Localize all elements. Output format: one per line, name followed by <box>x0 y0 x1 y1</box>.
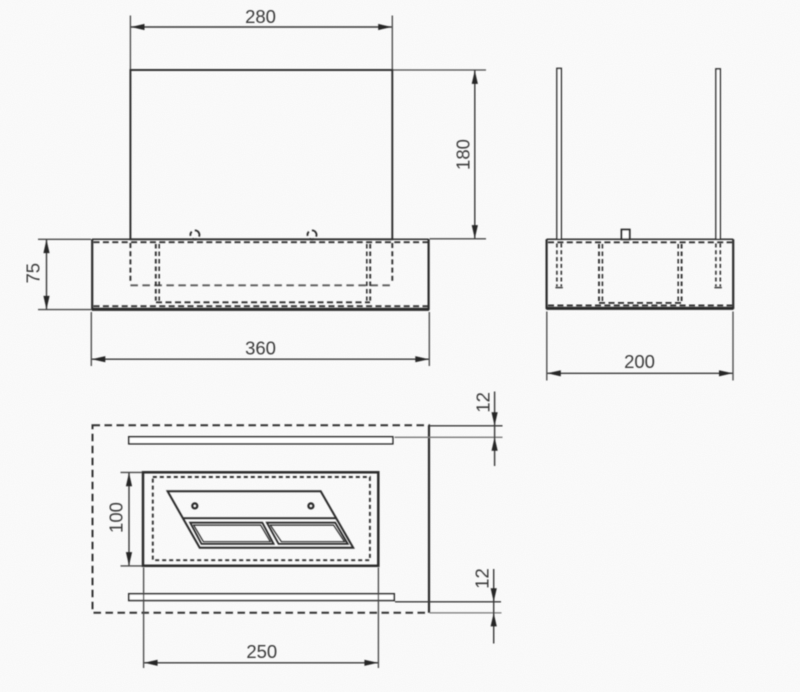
svg-text:360: 360 <box>245 338 276 359</box>
svg-text:200: 200 <box>624 351 655 372</box>
svg-text:75: 75 <box>23 263 44 284</box>
svg-text:250: 250 <box>246 641 277 662</box>
svg-text:280: 280 <box>245 6 276 27</box>
svg-text:100: 100 <box>105 502 126 533</box>
svg-text:180: 180 <box>453 139 474 170</box>
svg-text:12: 12 <box>472 392 493 413</box>
svg-text:12: 12 <box>472 568 493 589</box>
